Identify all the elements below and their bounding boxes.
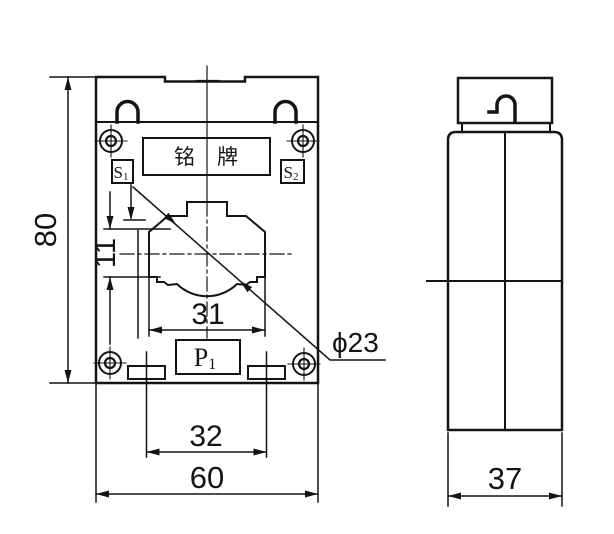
arrow-60-left [96, 491, 109, 498]
dim-11-label: 11 [90, 238, 122, 268]
screw-top-left [95, 125, 127, 157]
screw-bottom-left [94, 347, 126, 379]
screw-top-right [287, 125, 319, 157]
side-hook-cutout [489, 96, 515, 122]
ct-dimension-drawing: 80 11 31 ϕ23 32 60 37 铭牌 S1 S2 P1 [0, 0, 614, 534]
dim-60-label: 60 [190, 460, 224, 495]
terminal-p1-label: P1 [194, 343, 216, 373]
side-top-cap [458, 78, 552, 123]
arrow-31-left [149, 327, 162, 334]
arrow-80-bottom [65, 370, 72, 383]
terminal-s2-label: S2 [284, 163, 299, 183]
left-hook-cutout [117, 102, 138, 123]
arrow-11-bottom [107, 277, 114, 290]
nameplate-label: 铭牌 [174, 146, 260, 169]
arrow-80-top [65, 77, 72, 90]
arrow-aperture-upper [164, 213, 176, 224]
terminal-s1-label: S1 [114, 163, 129, 183]
arrow-s1-leader [128, 207, 135, 220]
arrow-32-left [147, 449, 160, 456]
screw-bottom-right [288, 348, 320, 380]
technical-drawing-page: 80 11 31 ϕ23 32 60 37 铭牌 S1 S2 P1 [0, 0, 614, 534]
dim-80-label: 80 [28, 213, 63, 247]
arrow-31-right [252, 327, 265, 334]
dim-37-label: 37 [488, 461, 522, 496]
right-hook-cutout [275, 102, 296, 123]
dim-31-label: 31 [191, 298, 224, 331]
dim-aperture-label: ϕ23 [332, 327, 379, 358]
arrow-11-top [107, 216, 114, 229]
arrow-32-right [254, 449, 267, 456]
arrow-60-right [305, 491, 318, 498]
dim-32-label: 32 [189, 420, 222, 453]
